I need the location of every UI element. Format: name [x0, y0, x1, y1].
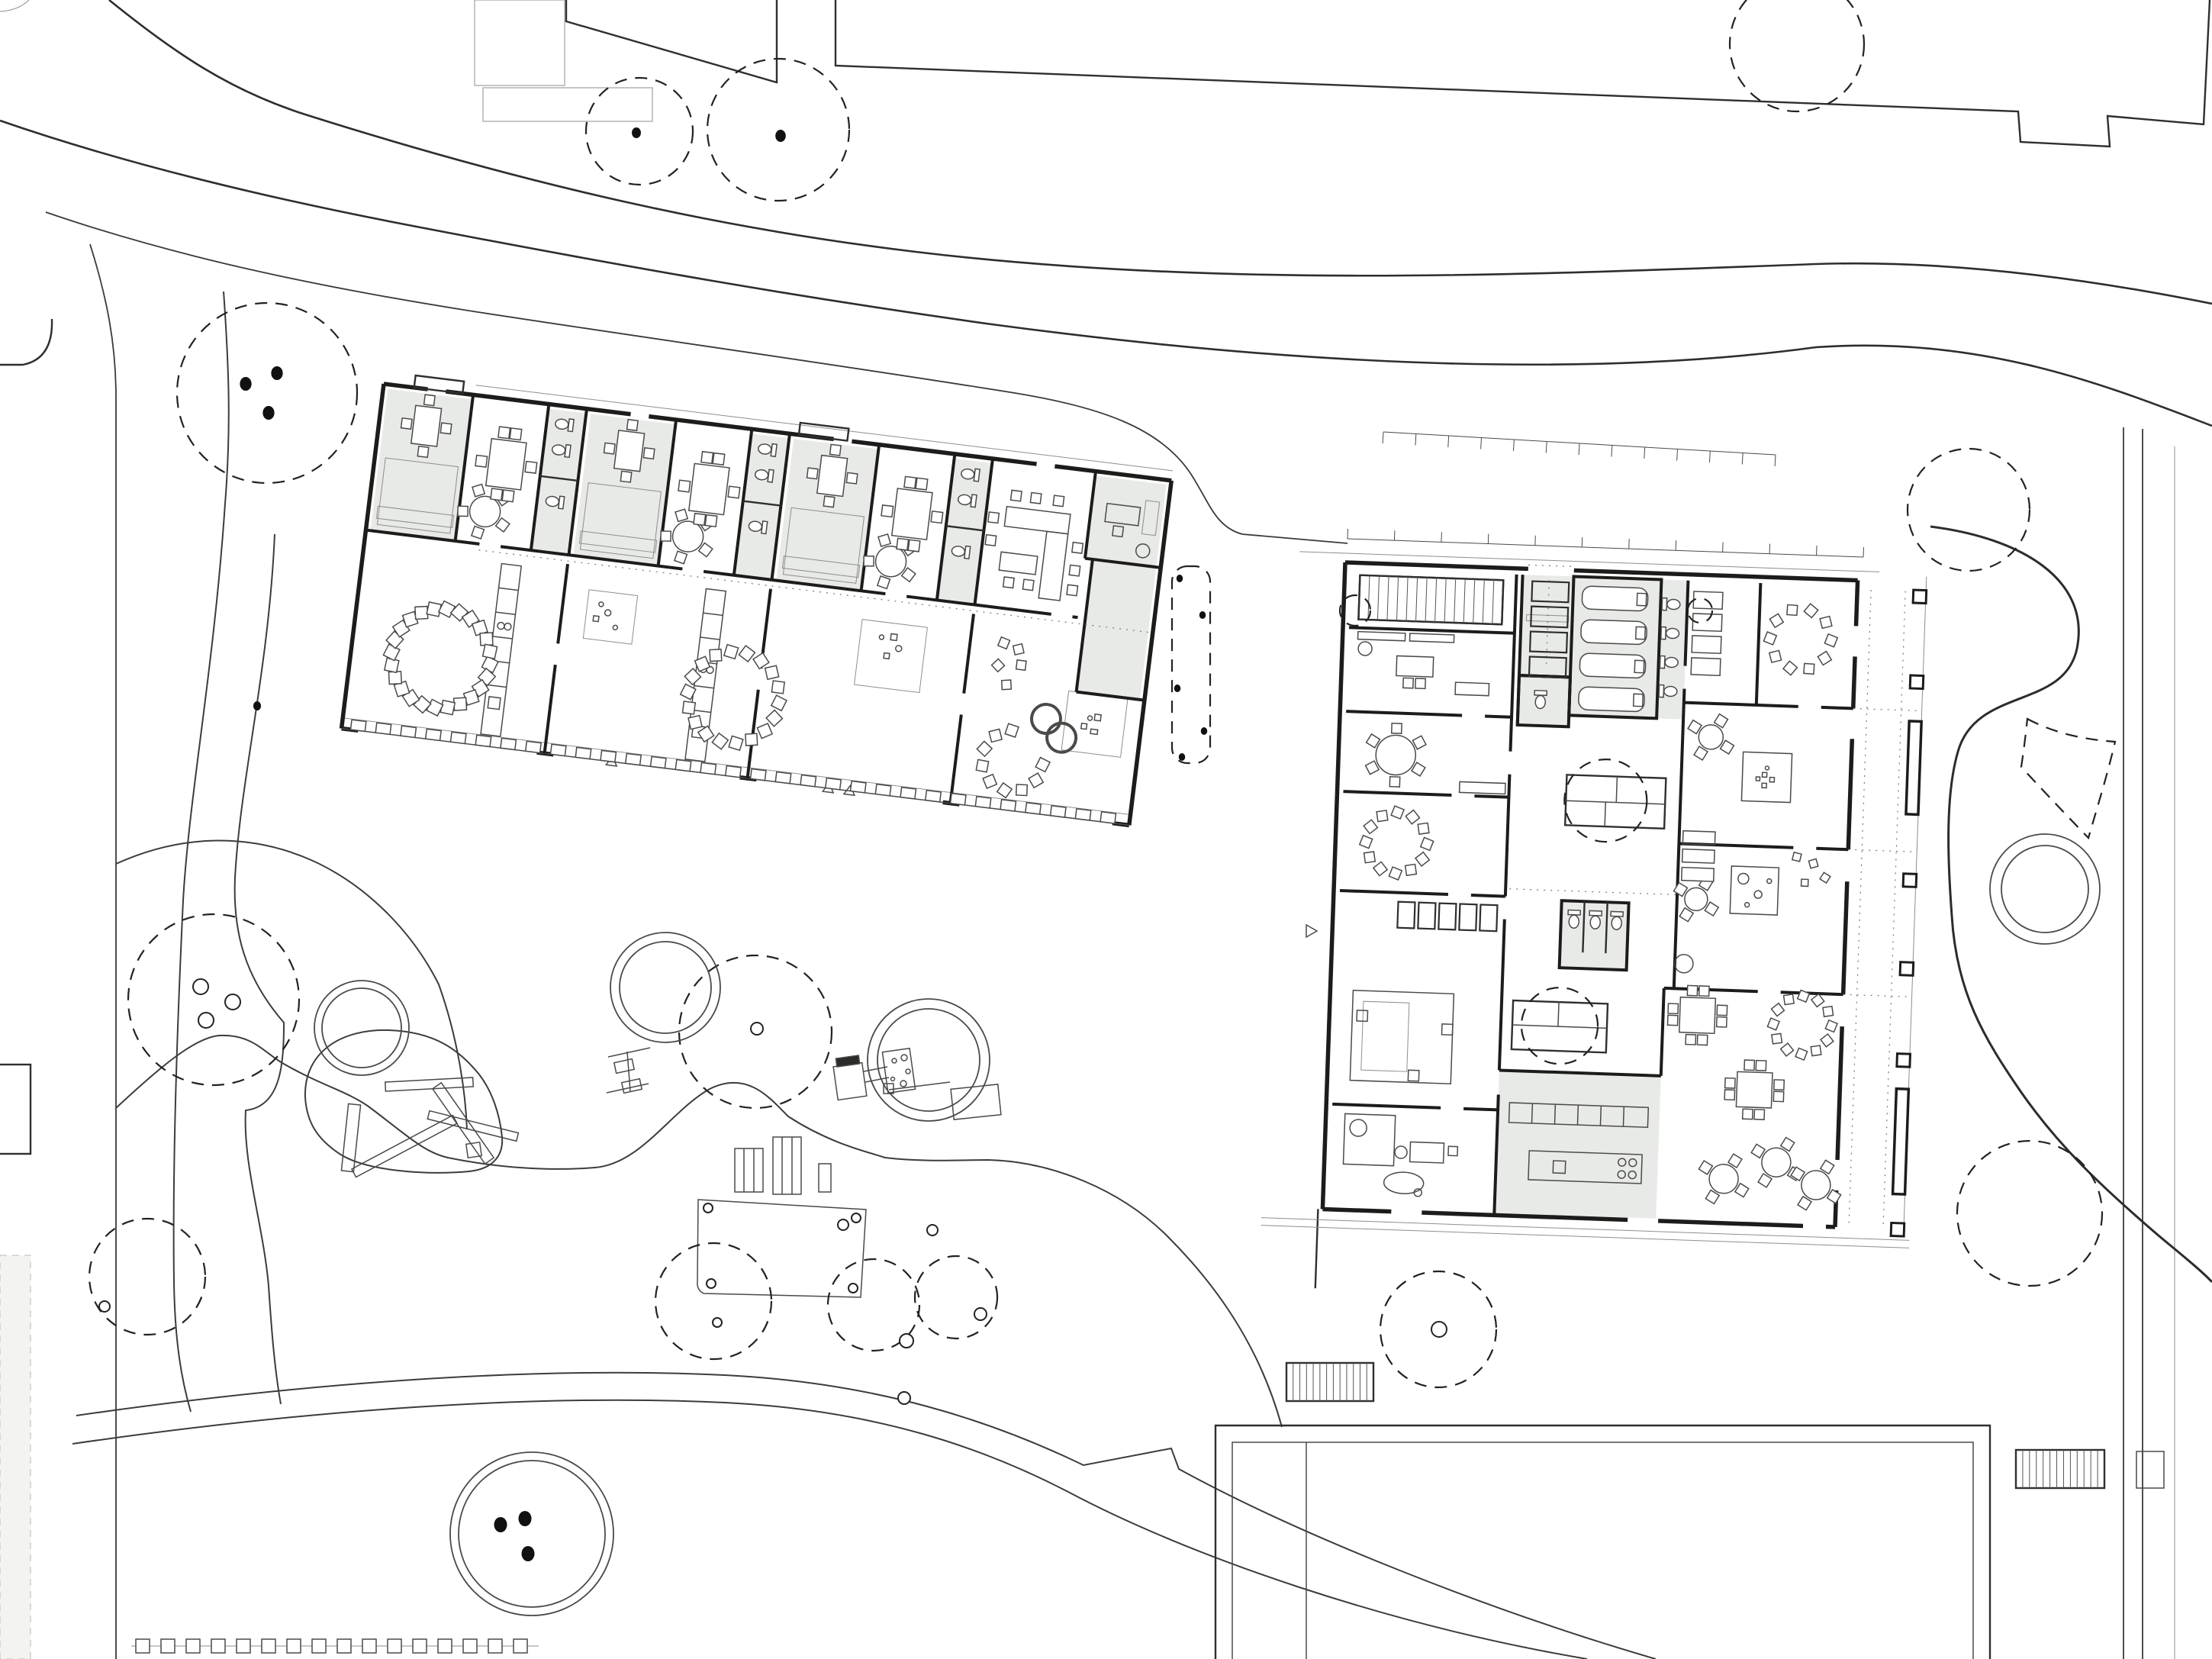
table	[689, 463, 729, 514]
chair	[1389, 777, 1399, 787]
chair	[1811, 1045, 1821, 1056]
chair	[1767, 1018, 1779, 1030]
tree-canopy-dashed	[1908, 449, 2030, 571]
chair	[1784, 994, 1795, 1005]
parking-tick	[1775, 455, 1776, 466]
chair	[401, 418, 412, 429]
tree-canopy-dashed	[1957, 1141, 2102, 1286]
chair	[904, 476, 916, 488]
chair	[1415, 852, 1429, 866]
trunk-dot	[1199, 611, 1206, 619]
window-mullion	[1026, 803, 1041, 814]
chair	[472, 485, 485, 497]
tree-canopy-dashed	[128, 914, 299, 1085]
trunk-dot	[632, 127, 641, 138]
left-building	[341, 372, 1173, 829]
window-mullion	[975, 797, 990, 808]
stair	[1286, 1363, 1373, 1401]
chair	[864, 556, 874, 566]
chair	[417, 446, 428, 457]
vegetation-and-site-items	[89, 0, 2104, 1653]
pier	[1906, 721, 1921, 814]
chair	[1717, 1017, 1727, 1027]
window-mullion	[726, 765, 741, 777]
curb-arc	[0, 0, 29, 11]
chair	[491, 488, 503, 501]
chair	[830, 444, 841, 455]
neighbor-building-c	[836, 0, 2210, 147]
window-mullion	[951, 794, 966, 805]
chair	[1756, 1061, 1766, 1071]
road-upper-edge	[109, 0, 2212, 304]
chair	[415, 607, 428, 620]
round-table	[1708, 1164, 1738, 1194]
trunk-dot	[519, 1511, 532, 1526]
chair	[675, 551, 687, 564]
round-table-group	[1687, 713, 1735, 761]
chair	[1781, 1043, 1794, 1056]
chair	[1035, 758, 1050, 772]
lawn-mid-boundary	[116, 1036, 1282, 1427]
table	[486, 439, 526, 490]
chair-ring	[675, 639, 793, 757]
chair	[1373, 862, 1387, 875]
column	[1913, 590, 1927, 604]
small-open-dot	[1431, 1322, 1447, 1337]
sandbox	[697, 1200, 866, 1297]
trunk-dot	[775, 130, 786, 142]
fence-post	[514, 1639, 527, 1653]
fence-post	[211, 1639, 225, 1653]
small-open-dot	[898, 1392, 910, 1404]
field-inner	[1232, 1442, 1973, 1659]
parking-tick	[1612, 446, 1612, 457]
chair	[1825, 1020, 1837, 1032]
chair-ring	[1358, 805, 1434, 881]
road-lower-edge	[0, 121, 2212, 426]
chair	[1668, 1003, 1678, 1013]
tree-ring-outer	[314, 981, 409, 1075]
window-mullion	[926, 791, 941, 802]
field-side-box	[2136, 1451, 2164, 1488]
chair	[458, 506, 468, 516]
parking-tick	[1644, 447, 1645, 459]
column	[1891, 1223, 1905, 1237]
fence-post	[488, 1639, 502, 1653]
tree-ring-inner	[322, 988, 401, 1068]
tree-canopy-dashed	[89, 1219, 205, 1335]
chair	[1364, 820, 1377, 833]
chair	[525, 462, 537, 474]
chair-ring	[1766, 989, 1839, 1061]
chair	[1412, 736, 1426, 749]
chair	[745, 733, 758, 746]
trunk-dot	[1179, 753, 1186, 761]
chair	[1389, 867, 1402, 880]
chair	[424, 395, 435, 405]
chair	[683, 701, 696, 714]
tree-ring-outer	[1990, 834, 2100, 944]
chair	[1773, 1091, 1783, 1101]
right-building	[1259, 551, 1933, 1309]
chair-ring	[1763, 602, 1839, 677]
chair	[881, 505, 893, 517]
trunk-dot	[494, 1517, 507, 1532]
chair	[688, 716, 702, 730]
chair	[1364, 852, 1376, 863]
window-mullion	[475, 735, 491, 746]
chair	[388, 672, 401, 685]
chair	[1820, 617, 1832, 629]
parking-edge	[1347, 539, 1863, 557]
chair	[454, 697, 467, 710]
parking-tick	[1513, 440, 1514, 451]
window-mullion	[350, 720, 365, 731]
tree-ring-inner	[459, 1461, 605, 1607]
cot	[1682, 868, 1715, 881]
window-mullion	[700, 762, 716, 774]
chair	[1783, 661, 1797, 675]
parking-tick	[1546, 442, 1547, 453]
table-group	[1396, 656, 1433, 688]
small-open-dot	[848, 1284, 858, 1293]
chair	[1391, 806, 1404, 819]
window-mullion	[751, 769, 766, 781]
chair	[604, 443, 615, 453]
chair	[1763, 632, 1776, 645]
trunk-dot	[522, 1546, 535, 1561]
chair	[877, 576, 890, 589]
round-table	[1801, 1170, 1830, 1200]
chair	[1376, 810, 1388, 822]
path-west-edge	[174, 292, 229, 1412]
west-street-edge	[90, 244, 116, 1659]
chair	[1743, 1109, 1753, 1119]
chair	[989, 729, 1002, 742]
tree-ring-inner	[877, 1009, 980, 1111]
chair	[823, 496, 834, 507]
chair	[997, 783, 1013, 798]
tree-ring-outer	[868, 999, 990, 1121]
round-table	[1684, 887, 1708, 911]
parking-bay-corner	[0, 319, 52, 365]
chair	[483, 644, 497, 659]
window-mullion	[651, 756, 666, 768]
small-open-dot	[707, 1279, 716, 1288]
chair	[983, 775, 997, 788]
chair	[678, 480, 691, 492]
chair	[1725, 1078, 1735, 1088]
chair	[1418, 823, 1429, 834]
chair	[753, 653, 769, 669]
fence-post	[136, 1639, 150, 1653]
table	[614, 430, 645, 472]
chair	[807, 468, 818, 478]
chair	[878, 534, 890, 546]
tree-ring-inner	[620, 942, 711, 1033]
chair	[510, 428, 522, 440]
chair	[846, 472, 857, 483]
column	[1897, 1054, 1911, 1068]
chair	[712, 733, 728, 749]
chair	[440, 701, 455, 715]
chair	[739, 646, 755, 662]
table	[1736, 1071, 1772, 1108]
small-open-dot	[974, 1308, 987, 1320]
chair	[1769, 650, 1782, 662]
small-open-dot	[99, 1301, 110, 1312]
chair	[1744, 1060, 1754, 1070]
stair	[2016, 1450, 2104, 1488]
chair	[627, 420, 638, 430]
small-open-dot	[713, 1318, 722, 1327]
chair	[713, 453, 725, 465]
chair	[908, 540, 920, 552]
chair	[771, 695, 787, 710]
chair	[1821, 1034, 1834, 1047]
round-table	[1698, 724, 1724, 749]
chair	[897, 538, 909, 550]
tree-ring-outer	[610, 933, 720, 1042]
site-plan-page	[0, 0, 2212, 1659]
window-mullion	[1051, 806, 1066, 817]
roads	[0, 0, 2212, 1659]
chair	[1403, 678, 1413, 688]
small-open-dot	[852, 1213, 861, 1223]
window-mullion	[875, 784, 890, 796]
chair	[440, 423, 451, 433]
chair	[1699, 986, 1709, 996]
chair	[1415, 678, 1425, 688]
chair	[1804, 604, 1818, 617]
chair	[1754, 1110, 1764, 1119]
chair	[1795, 1048, 1808, 1060]
round-table-group	[1365, 723, 1427, 788]
chair	[710, 649, 722, 662]
tree-canopy-dashed	[655, 1243, 771, 1359]
table	[1679, 997, 1716, 1034]
trunk-dot	[1177, 575, 1183, 582]
chair	[1029, 773, 1043, 788]
parking-tick	[1709, 451, 1710, 462]
window-mullion	[375, 723, 391, 734]
round-table-group	[1673, 876, 1719, 923]
chair	[1804, 663, 1814, 674]
chair	[1811, 994, 1824, 1007]
chair	[1769, 614, 1783, 627]
chair	[1823, 1007, 1834, 1017]
neighbor-building-b	[566, 0, 777, 82]
shade-sail-dashed	[2021, 719, 2115, 838]
round-table	[1761, 1148, 1791, 1177]
table	[411, 405, 442, 446]
tree-canopy-dashed	[1730, 0, 1864, 111]
stair	[1358, 575, 1503, 625]
chair	[705, 515, 717, 527]
chair	[976, 759, 988, 772]
window-mullion	[775, 772, 790, 784]
parking-tick	[1383, 432, 1383, 443]
window-mullion	[800, 775, 816, 787]
chair	[757, 723, 772, 739]
chair	[1697, 1035, 1707, 1045]
seesaw	[607, 1048, 650, 1093]
chair	[765, 665, 779, 679]
small-open-dot	[838, 1219, 848, 1230]
chair	[1772, 1033, 1782, 1044]
chair	[729, 736, 743, 750]
window-mullion	[575, 747, 591, 759]
tree-ring-inner	[2001, 846, 2088, 933]
chair	[1686, 1035, 1695, 1045]
chair	[931, 511, 943, 523]
chair	[1687, 985, 1697, 995]
trunk-dot	[1174, 685, 1181, 692]
chair	[643, 448, 654, 459]
round-table-group	[1698, 1153, 1750, 1206]
window-mullion	[426, 729, 441, 740]
fence-post	[186, 1639, 200, 1653]
play-tower-bridge	[833, 1049, 915, 1100]
table	[892, 488, 932, 540]
trunk-dot	[262, 406, 274, 420]
chair	[1016, 784, 1028, 796]
mikado-sticks	[341, 1078, 518, 1177]
chair-ring	[377, 594, 505, 723]
small-open-dot	[193, 979, 208, 994]
window-mullion	[1000, 800, 1016, 811]
chair	[661, 531, 671, 541]
window-mullion	[826, 778, 841, 790]
fence-post	[287, 1639, 301, 1653]
locker	[1479, 904, 1497, 931]
window-mullion	[401, 726, 416, 737]
chair	[684, 668, 700, 685]
chair	[1787, 605, 1798, 616]
chair	[480, 633, 493, 646]
window-mullion	[501, 738, 516, 749]
chair	[916, 478, 928, 490]
window-mullion	[851, 781, 866, 793]
window-mullion	[1075, 809, 1090, 820]
chair	[502, 490, 514, 502]
column	[1910, 675, 1924, 689]
window-mullion	[675, 759, 691, 771]
fence-post	[312, 1639, 326, 1653]
trunk-dot	[1201, 727, 1208, 735]
neighbor-building-a	[475, 0, 565, 85]
window-mullion	[900, 788, 916, 799]
window-mullion	[550, 744, 565, 755]
chair	[475, 456, 488, 468]
table	[1396, 656, 1434, 677]
tree-ring-outer	[450, 1452, 613, 1616]
fence-post	[262, 1639, 275, 1653]
chair	[766, 710, 782, 726]
chair	[1772, 1003, 1785, 1016]
chair	[771, 681, 784, 694]
chair	[1405, 865, 1417, 876]
window-mullion	[526, 741, 541, 752]
small-open-dot	[900, 1334, 913, 1348]
table-group	[1724, 1059, 1785, 1120]
small-open-dot	[751, 1023, 763, 1035]
fence-post	[237, 1639, 250, 1653]
side-building	[0, 1065, 31, 1154]
fence-post	[413, 1639, 427, 1653]
fence-post	[362, 1639, 376, 1653]
pier	[1893, 1089, 1909, 1194]
chair	[698, 726, 714, 742]
table-group	[1667, 985, 1728, 1046]
chair	[498, 427, 510, 439]
chair	[724, 645, 739, 659]
locker	[1438, 904, 1456, 930]
architectural-site-plan	[0, 0, 2212, 1659]
chair	[1392, 723, 1402, 733]
section-marker-triangle	[1306, 925, 1317, 937]
tree-canopy-dashed	[177, 303, 357, 483]
small-open-dot	[927, 1225, 938, 1235]
chair	[1360, 836, 1373, 849]
trunk-dot	[240, 377, 251, 391]
chair	[385, 658, 399, 672]
cot	[1692, 636, 1721, 653]
chair	[1724, 1090, 1734, 1100]
chair	[472, 527, 485, 540]
locker	[1418, 903, 1435, 929]
small-open-dot	[704, 1203, 713, 1213]
chair	[1717, 1005, 1727, 1015]
parking-tick	[1742, 453, 1743, 465]
window-mullion	[626, 753, 641, 765]
cot	[1682, 849, 1715, 863]
tree-canopy-dashed	[915, 1256, 997, 1338]
slide-group	[735, 1137, 831, 1194]
sports-field	[1215, 1425, 2164, 1659]
chair	[1421, 838, 1434, 851]
window-mullion	[450, 732, 465, 743]
parking-tick	[1677, 449, 1678, 461]
chair	[701, 452, 713, 464]
neighbor-apron	[483, 88, 652, 121]
chair	[1667, 1015, 1677, 1025]
tree-canopy-dashed	[707, 59, 849, 201]
parking-tick	[1481, 438, 1482, 449]
fence-post	[388, 1639, 401, 1653]
parking-tick	[1415, 434, 1416, 446]
parking-tick	[1448, 436, 1449, 447]
chair	[620, 471, 631, 482]
small-open-dot	[225, 994, 240, 1010]
window-mullion	[600, 750, 616, 762]
chair	[675, 509, 687, 521]
chair	[1774, 1080, 1784, 1090]
table	[817, 456, 848, 497]
chair	[977, 741, 992, 756]
playground	[305, 1030, 1001, 1297]
fence-post	[161, 1639, 175, 1653]
parking-tick	[1579, 443, 1579, 455]
round-table	[1375, 735, 1416, 776]
walkway-lower	[72, 1400, 1587, 1659]
round-table-group	[1750, 1136, 1803, 1189]
window-mullion	[1100, 812, 1116, 823]
locker	[1459, 904, 1476, 931]
path-east-edge	[235, 534, 284, 1404]
chair	[1005, 723, 1019, 737]
chair	[728, 486, 740, 498]
